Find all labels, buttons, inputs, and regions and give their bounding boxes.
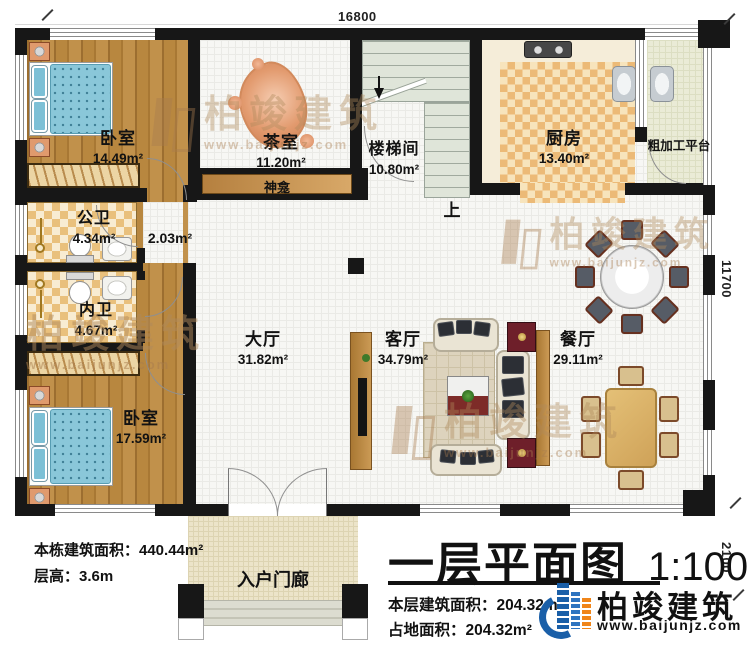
cushion-icon	[437, 321, 455, 337]
porch-column-base-left	[178, 618, 204, 640]
chair-icon	[581, 396, 601, 422]
stair-direction-arrow-icon	[374, 88, 384, 99]
pillow-icon	[32, 100, 47, 132]
tv-icon	[358, 378, 367, 436]
room-label-bedroom-top: 卧室 14.49m²	[93, 128, 143, 168]
pillow-icon	[32, 447, 47, 481]
toilet-tank-icon	[66, 255, 94, 263]
window-left-bedroom-top	[15, 55, 27, 140]
cushion-icon	[501, 377, 525, 397]
footprint-area-line: 占地面积：204.32m²	[388, 618, 563, 643]
dining-table-icon	[605, 388, 657, 468]
wall-bedroom-bath	[15, 188, 147, 202]
wall-kitchen-south-left	[470, 183, 520, 195]
chair-icon	[581, 432, 601, 458]
cushion-icon	[502, 400, 524, 418]
wall-bedroom-tea	[188, 40, 200, 172]
kitchen-pass-window	[635, 40, 647, 127]
window-top-platform	[645, 28, 698, 40]
dimension-tick	[729, 497, 741, 509]
window-bottom-living	[420, 504, 500, 516]
window-left-public-bath	[15, 205, 27, 255]
window-right-dining-low	[703, 430, 715, 475]
stair-lower-flight	[424, 102, 470, 198]
porch-column-base-right	[342, 618, 368, 640]
porch-column-right	[342, 584, 368, 618]
total-building-area: 本栋建筑面积：440.44m²	[34, 538, 203, 564]
cushion-icon	[477, 449, 494, 464]
eave-line	[15, 24, 715, 25]
wall-kitchen-south-right	[625, 183, 715, 195]
toilet-tank-icon	[66, 272, 94, 280]
wall-pier	[137, 330, 145, 343]
nightstand-icon	[29, 386, 50, 405]
window-right-dining-top	[703, 215, 715, 255]
area-label-corridor: 2.03m²	[148, 230, 192, 246]
room-label-entrance-porch: 入户门廊	[237, 566, 309, 592]
room-label-dining-room: 餐厅 29.11m²	[553, 329, 603, 369]
quilt-icon	[50, 409, 111, 484]
chair-icon	[621, 220, 643, 240]
shower-head-icon	[35, 243, 45, 253]
nightstand-icon	[29, 42, 50, 61]
wall-pier	[137, 248, 145, 263]
stove-icon	[524, 41, 572, 58]
cabinet-ornament-icon	[518, 449, 526, 457]
shower-rail-icon	[40, 218, 42, 246]
room-label-hall: 大厅 31.82m²	[238, 329, 288, 369]
stair-up-label: 上	[444, 196, 461, 221]
shower-rail-icon	[40, 290, 42, 318]
window-bottom-dining	[570, 504, 683, 516]
chair-icon	[659, 396, 679, 422]
kitchen-door-spill	[520, 183, 625, 203]
pillow-icon	[32, 411, 47, 445]
cushion-icon	[460, 452, 476, 465]
rug-dot-icon	[228, 96, 242, 110]
brand-logo-icon	[543, 583, 593, 641]
corner-column-bottom-right	[683, 490, 715, 516]
window-right-dining-mid	[703, 295, 715, 380]
wall-bath-bedroom2	[15, 343, 143, 351]
window-bottom-bedroom	[55, 504, 155, 516]
cushion-icon	[456, 320, 472, 334]
window-top-bedroom	[50, 28, 155, 40]
brand-website: www.baijunjz.com	[597, 617, 742, 633]
room-label-bedroom-bottom: 卧室 17.59m²	[116, 408, 166, 448]
floor-area-line: 本层建筑面积：204.32m²	[388, 593, 563, 618]
dimension-right: 11700	[719, 260, 734, 298]
quilt-icon	[50, 64, 111, 134]
sink-icon	[102, 276, 132, 300]
sink-icon	[650, 66, 674, 102]
room-label-stairwell: 楼梯间 10.80m²	[368, 140, 419, 178]
wall-pier	[137, 271, 145, 280]
room-label-living-room: 客厅 34.79m²	[378, 329, 428, 369]
room-label-prep-platform: 粗加工平台	[648, 135, 711, 154]
sink-icon	[612, 66, 636, 102]
dimension-top: 16800	[338, 9, 377, 24]
dimension-tick	[41, 9, 53, 21]
floor-plan-sheet: 卧室 14.49m² 茶室 11.20m² 楼梯间 10.80m² 厨房 13.…	[0, 0, 750, 648]
cushion-icon	[502, 356, 524, 374]
porch-steps	[202, 600, 344, 626]
chair-icon	[618, 470, 644, 490]
plant-icon	[362, 354, 370, 362]
cabinet-ornament-icon	[518, 333, 526, 341]
window-right-platform	[703, 48, 715, 185]
window-left-private-bath	[15, 285, 27, 335]
hall-column	[348, 258, 364, 274]
wall-stair-kitchen	[470, 40, 482, 195]
plant-icon	[462, 390, 474, 402]
pillow-icon	[32, 66, 47, 98]
window-left-bedroom-bottom	[15, 390, 27, 477]
chair-icon	[669, 266, 689, 288]
left-info-block: 本栋建筑面积：440.44m² 层高：3.6m	[34, 538, 203, 590]
wall-tea-stair	[350, 40, 362, 172]
chair-icon	[618, 366, 644, 386]
wall-bath-divider	[15, 263, 143, 271]
wall-pier	[635, 127, 647, 142]
floor-height: 层高：3.6m	[34, 564, 203, 590]
room-label-public-bath: 公卫 4.34m²	[73, 209, 116, 247]
chair-icon	[621, 314, 643, 334]
nightstand-icon	[29, 138, 50, 157]
cushion-icon	[439, 449, 456, 464]
wardrobe-bottom-icon	[27, 351, 140, 376]
room-label-kitchen: 厨房 13.40m²	[539, 128, 589, 168]
divider-screen-icon	[536, 330, 550, 466]
round-dining-table-icon	[600, 245, 664, 309]
rug-dot-icon	[252, 58, 264, 70]
chair-icon	[659, 432, 679, 458]
shower-head-icon	[35, 279, 45, 289]
room-label-private-bath: 内卫 4.67m²	[75, 301, 118, 339]
title-areas: 本层建筑面积：204.32m² 占地面积：204.32m²	[388, 593, 563, 643]
cushion-icon	[473, 321, 491, 337]
room-label-tea-room: 茶室 11.20m²	[256, 132, 306, 172]
room-label-shrine: 神龛	[264, 177, 290, 196]
chair-icon	[575, 266, 595, 288]
